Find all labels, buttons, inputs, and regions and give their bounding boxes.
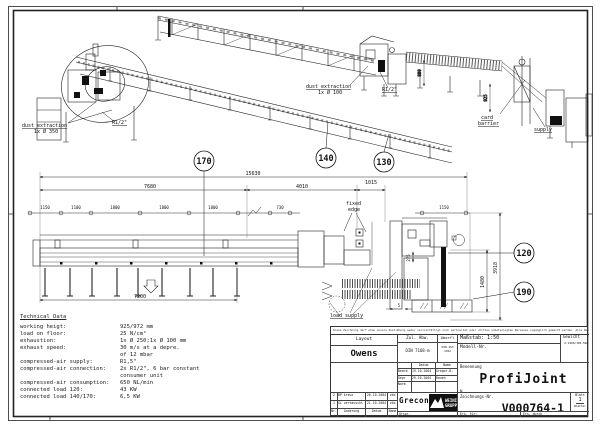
revision-empty-area [331, 363, 398, 393]
dust-extraction-mid-size: 1x Ø 100 [318, 89, 342, 96]
blaetter-label: Blätter [571, 404, 589, 408]
tech-row: of 12 mbar [20, 352, 320, 359]
tech-row: exhaust speed:30 m/s at a depre. [20, 345, 320, 352]
supply-label: supply [534, 127, 552, 133]
tech-row: consumer unit [20, 373, 320, 380]
blatt-value: 1 [576, 397, 584, 404]
drawing-number-cell: Zeichnungs-Nr. V000764-1 [458, 393, 571, 412]
measuring-chain [28, 207, 470, 216]
iso-beam-lower [76, 57, 452, 163]
plan-labels: fixed edge load supply [330, 201, 363, 319]
dim-gap: 5 [398, 303, 401, 308]
balloon-120: 120 [514, 243, 534, 263]
card-barrier-label-2: barrier [478, 121, 499, 127]
balloon-190-number: 190 [516, 288, 531, 298]
grecon-logo-text: Grecon [399, 396, 429, 408]
dim-chain-4: 1800 [208, 205, 218, 210]
load-supply-label: load supply [330, 313, 363, 319]
tech-row: load on floor:25 N/cm² [20, 331, 320, 338]
designation-cell: Benennung ProfiJoint N [458, 363, 589, 393]
plan-machine-right [390, 218, 465, 309]
dim-seg1: 7680 [144, 184, 156, 190]
dim-seg2: 4010 [296, 184, 308, 190]
dim-seg3: 1015 [365, 180, 377, 186]
benennung-label: Benennung [458, 363, 589, 369]
tech-row: working heigt:925/972 mm [20, 324, 320, 331]
customer-name: Owens [331, 346, 398, 363]
balloon-130-number: 130 [376, 158, 391, 168]
iso-conveyor-belt [406, 52, 546, 102]
balloons: 170 140 130 120 190 [194, 122, 534, 302]
gewicht-value: A:1906/185.52A [561, 341, 589, 345]
dim-chain-1: 1100 [71, 205, 81, 210]
massstab-value: Maßstab: 1:50 [458, 334, 560, 344]
balloon-130: 130 [374, 152, 394, 172]
dim-right-inner: 1480 [480, 276, 486, 288]
weinig-gruppe-logo: WEINIG GRUPPE [429, 394, 457, 411]
tolerance-cell: Zul. Abw. DIN 7168-m [398, 334, 438, 363]
revision-table: 2 BP kreuz 26.10.2004 ckb 1 SL vertausch… [331, 393, 398, 417]
plan-machine-centre [298, 222, 372, 267]
tech-row: exhaustion:1x Ø 250;1x Ø 100 mm [20, 338, 320, 345]
fixed-edge-label-2: edge [348, 207, 360, 213]
technical-data-title: Technical Data [20, 314, 320, 321]
iso-card-barrier-supply [514, 56, 592, 148]
plan-view [33, 213, 472, 316]
iso-beam-top [155, 16, 376, 75]
drawing-number: V000764-1 [458, 401, 570, 412]
technical-data-block: Technical Data working heigt:925/972 mm … [20, 314, 320, 401]
dust-extraction-left-size: 1x Ø 350 [34, 128, 58, 135]
r-half-left-label: R1/2" [112, 120, 127, 126]
layout-label: Layout [331, 334, 398, 346]
dim-right-top: 1150 [439, 205, 449, 210]
surface-cell: Oberfl DIN ISO 1302 [438, 334, 458, 363]
tech-row: compressed-air supply:R1,5" [20, 359, 320, 366]
oberfl-label: Oberfl [438, 334, 457, 343]
feed-direction-arrow [144, 280, 158, 293]
sheet-cell: Blatt 1 Blätter [571, 393, 589, 412]
logo-cell: Grecon WEINIG GRUPPE Urspr. [398, 393, 458, 417]
revision-row: 2 BP kreuz 26.10.2004 ckb [331, 393, 398, 401]
title-block: Diese Zeichnung darf ohne unsere Zustimm… [330, 326, 588, 416]
dim-925: 925 [483, 94, 488, 102]
dim-bottom: 7200 [134, 294, 146, 300]
scale-cell: Maßstab: 1:50 Modell-Nr. [458, 334, 561, 363]
approval-row-norm: Norm [398, 382, 458, 393]
balloon-190: 190 [514, 282, 534, 302]
gewicht-label: Gewicht [561, 334, 589, 339]
revision-row: 1 SL vertauscht 21.10.2004 ckb [331, 401, 398, 409]
ers-durch-label: Ers. durch [521, 412, 589, 417]
dim-depth: 275 [406, 254, 411, 262]
approval-table: Datum Name Bearb 19.10.2004 Gregor-B. Ge… [398, 363, 458, 393]
tech-row: compressed-air consumption:650 NL/min [20, 380, 320, 387]
tech-row: connected load 120:43 KW [20, 387, 320, 394]
dim-right-outer: 3918 [493, 262, 499, 274]
tech-row: compressed-air connection:2x R1/2", 6 ba… [20, 366, 320, 373]
tech-row: connected load 140/170:6,5 KW [20, 394, 320, 401]
balloon-120-number: 120 [516, 249, 531, 259]
svg-text:GRUPPE: GRUPPE [445, 403, 457, 408]
dim-chain-2: 1800 [110, 205, 120, 210]
zul-abw-value: DIN 7168-m [398, 348, 437, 353]
ers-fuer-label: Ers. für: [458, 412, 521, 417]
oberfl-value-2: 1302 [438, 349, 457, 353]
balloon-170-number: 170 [196, 157, 211, 167]
revision-header-row: Nr. Änderung Datum Name [331, 409, 398, 417]
urspr-label: Urspr. [398, 411, 458, 417]
drawing-sheet: 800 925 dust extraction 1x Ø 350 R1/2" d… [0, 0, 600, 427]
dim-chain-0: 1150 [40, 205, 50, 210]
dim-800: 800 [417, 69, 422, 77]
modell-label: Modell-Nr. [458, 345, 560, 350]
dim-total: 15630 [245, 171, 260, 177]
plan-table [33, 235, 298, 296]
balloon-140-number: 140 [318, 154, 333, 164]
balloon-170: 170 [194, 151, 214, 171]
zeichnungs-nr-label: Zeichnungs-Nr. [458, 393, 570, 399]
weight-cell: Gewicht A:1906/185.52A [561, 334, 589, 363]
balloon-140: 140 [316, 148, 336, 168]
r-half-mid-label: R1/2" [382, 87, 397, 93]
dim-chain-3: 1800 [159, 205, 169, 210]
drawing-title: ProfiJoint [458, 372, 589, 387]
dimension-lines [28, 172, 503, 320]
plan-leaders [330, 213, 366, 316]
zul-abw-label: Zul. Abw. [398, 334, 437, 343]
plan-corrugated-conveyor [322, 268, 420, 314]
dim-mid: 730 [276, 205, 284, 210]
